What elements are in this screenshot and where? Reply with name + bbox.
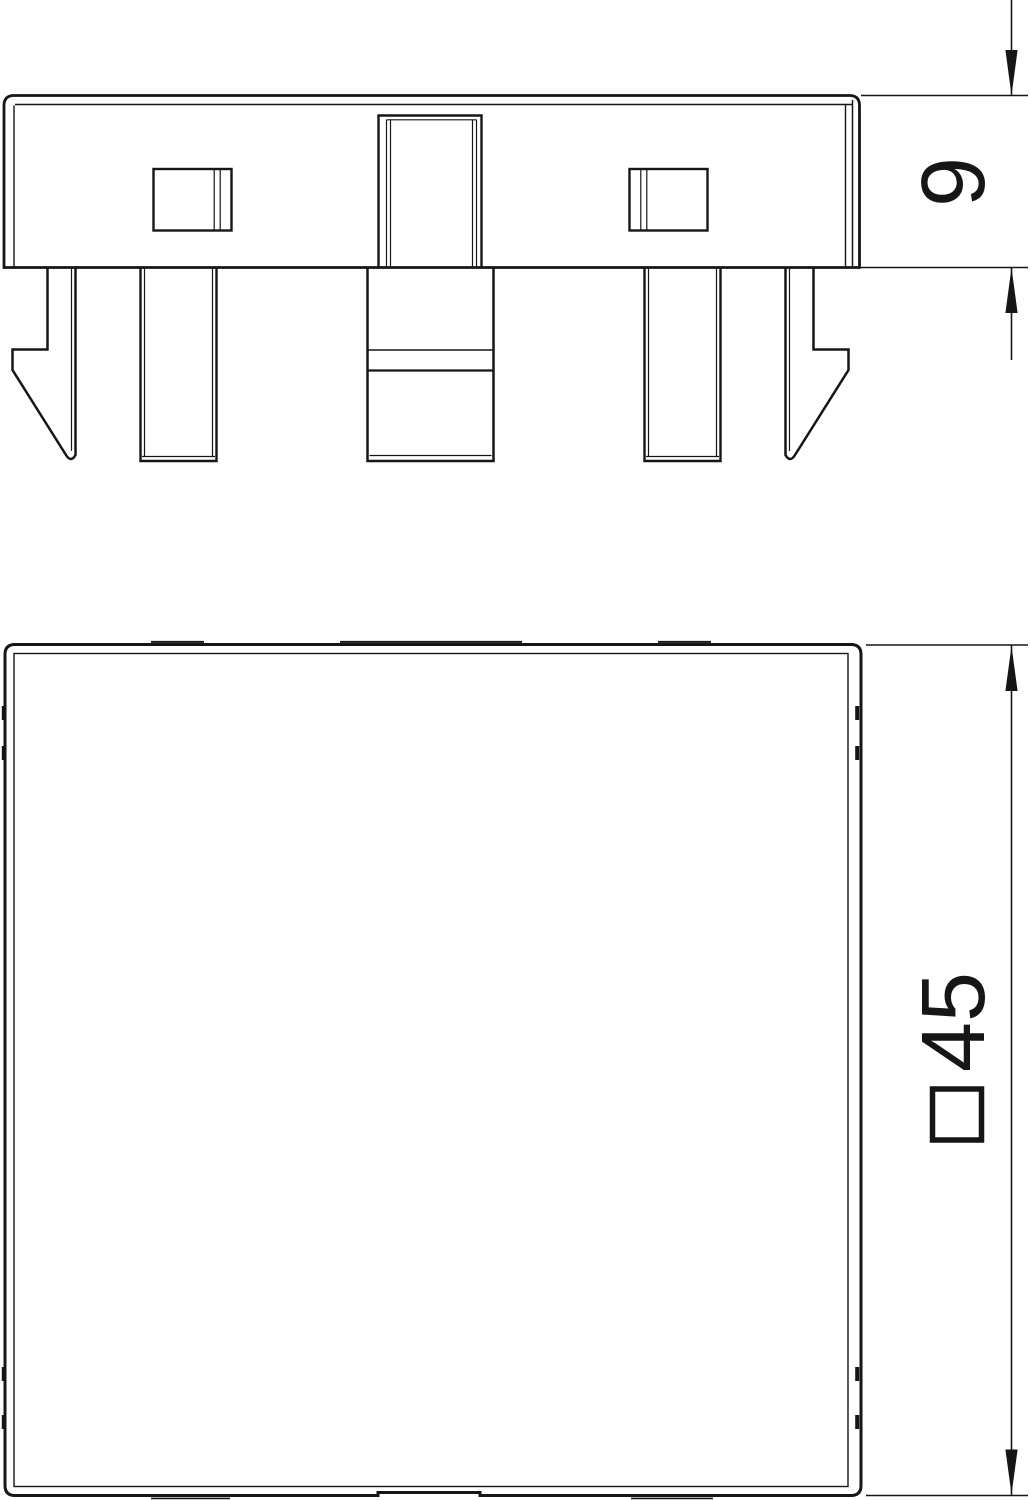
arrow-up-icon — [1005, 268, 1017, 314]
center-tongue — [379, 116, 482, 268]
front-inner-outline — [14, 654, 848, 1487]
front-right-edge-nub-3 — [855, 1367, 859, 1381]
left-barb-leg-outline — [13, 268, 76, 460]
width-dimension-label: 45 — [904, 972, 1004, 1072]
front-right-edge-nub-4 — [855, 1415, 859, 1429]
left-straight-leg — [141, 268, 217, 462]
right-straight-leg — [645, 268, 721, 462]
center-tongue-outline — [379, 116, 482, 268]
left-clip-window — [154, 169, 232, 231]
center-leg — [368, 268, 494, 462]
front-right-edge-nub-1 — [855, 706, 859, 720]
front-outline — [5, 645, 861, 1496]
white-square-symbol-icon — [933, 1089, 982, 1140]
front-left-edge-nub-3 — [2, 1367, 6, 1381]
arrow-down-icon — [1005, 50, 1017, 96]
height-dimension: 9 — [861, 0, 1028, 360]
right-clip-window — [630, 169, 708, 231]
front-right-edge-nub-2 — [855, 746, 859, 760]
side-view — [4, 96, 860, 462]
side-body-outline — [4, 96, 860, 268]
technical-drawing-page: 9 45 — [0, 0, 1030, 1500]
front-view — [2, 642, 861, 1499]
arrow-down-icon — [1005, 1450, 1017, 1495]
technical-drawing: 9 45 — [0, 0, 1030, 1500]
center-leg-outline — [368, 268, 494, 462]
right-barb-leg-outline — [786, 268, 849, 460]
left-barb-leg — [13, 268, 76, 460]
front-left-edge-nub-2 — [2, 746, 6, 760]
arrow-up-icon — [1005, 646, 1017, 691]
front-left-edge-nub-1 — [2, 706, 6, 720]
front-left-edge-nub-4 — [2, 1415, 6, 1429]
width-dimension: 45 — [866, 645, 1028, 1496]
height-dimension-label: 9 — [904, 157, 1004, 207]
right-barb-leg — [786, 268, 849, 460]
right-straight-leg-outline — [645, 268, 721, 462]
left-straight-leg-outline — [141, 268, 217, 462]
